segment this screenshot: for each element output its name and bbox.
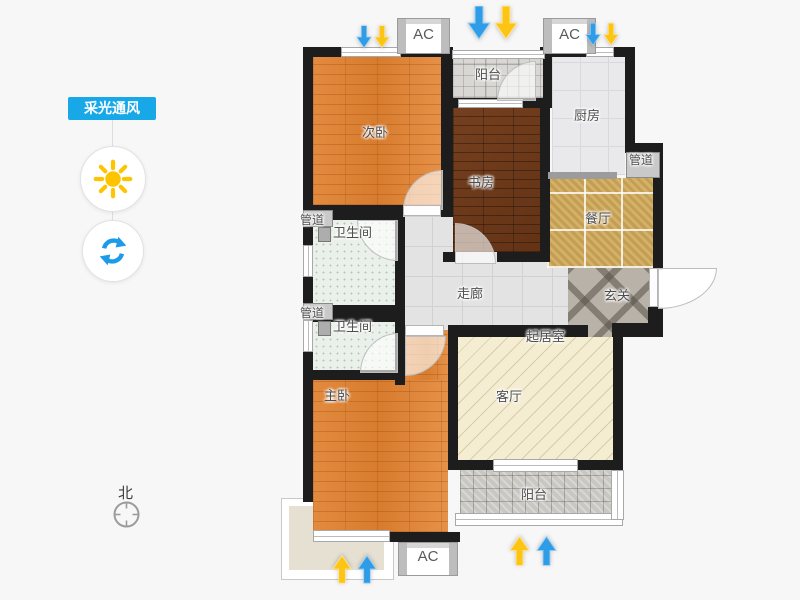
ac-unit: AC (398, 542, 458, 576)
pipe-shaft-icon (318, 321, 331, 336)
wall-segment (648, 307, 663, 323)
window (303, 320, 313, 352)
window (611, 470, 624, 520)
wall-segment (388, 532, 460, 542)
room-label-kitchen: 厨房 (574, 105, 600, 124)
wall-segment (612, 323, 663, 337)
ac-label: AC (418, 548, 439, 565)
room-label-dining: 餐厅 (585, 208, 611, 227)
entry-door-arc (658, 268, 717, 309)
wall-segment (448, 325, 588, 337)
light-arrow-down-icon (374, 24, 390, 50)
light-arrow-down-icon (494, 6, 518, 40)
compass: 北 (100, 480, 152, 536)
window (455, 513, 623, 526)
wall-segment (540, 98, 550, 262)
wind-arrow-down-icon (467, 6, 491, 40)
room-label-corridor: 走廊 (457, 283, 483, 302)
room-label-foyer: 玄关 (604, 285, 630, 304)
wall-segment (578, 460, 623, 470)
wind-arrow-down-icon (356, 24, 372, 50)
window (452, 50, 545, 59)
room-label-parlor: 客厅 (496, 386, 522, 405)
room-label-pipe1: 管道 (300, 211, 324, 228)
window (303, 245, 313, 277)
wind-arrow-down-icon (585, 22, 601, 47)
light-arrow-down-icon (603, 22, 619, 47)
wall-segment (497, 252, 550, 262)
room-label-pipe2: 管道 (300, 304, 324, 321)
room-label-bathroom1: 卫生间 (333, 222, 372, 241)
wind-arrow-up-icon (536, 534, 557, 567)
ac-unit: AC (397, 18, 450, 54)
kitchen-dining-divider (548, 172, 617, 179)
light-arrow-up-icon (509, 534, 530, 567)
entry-door-leaf (649, 268, 658, 307)
sun-icon (93, 159, 133, 199)
wall-segment (448, 460, 493, 470)
wall-segment (613, 337, 623, 470)
room-living-floor (458, 337, 613, 462)
lighting-toolbar: 采光通风 (0, 0, 200, 320)
room-label-pipe-kitchen: 管道 (629, 151, 653, 168)
room-label-balcony-south: 阳台 (521, 484, 547, 503)
room-label-balcony-north: 阳台 (475, 64, 501, 83)
window (313, 530, 390, 542)
door-leaf (403, 205, 441, 216)
pipe-shaft-icon (318, 227, 331, 242)
light-arrow-up-icon (332, 552, 352, 586)
wall-segment (443, 252, 455, 262)
lighting-ventilation-tooltip: 采光通风 (68, 97, 156, 120)
room-label-bedroom2: 次卧 (362, 122, 388, 141)
room-label-master: 主卧 (324, 385, 350, 404)
room-label-bathroom2: 卫生间 (333, 316, 372, 335)
floorplan-viewer: { "app": { "background": "#f7f7f7" }, "t… (0, 0, 800, 600)
ac-label: AC (413, 26, 434, 43)
refresh-icon (97, 235, 129, 267)
wind-arrow-up-icon (357, 552, 377, 586)
room-label-study: 书房 (468, 172, 494, 191)
door-leaf (405, 325, 444, 336)
wall-segment (448, 325, 458, 470)
room-label-living: 起居室 (526, 326, 565, 345)
ventilation-rotate-button[interactable] (82, 220, 144, 282)
compass-dial-icon (112, 500, 141, 529)
wall-segment (625, 47, 635, 148)
daylight-button[interactable] (80, 146, 146, 212)
sliding-door (493, 459, 578, 472)
ac-label: AC (559, 26, 580, 43)
